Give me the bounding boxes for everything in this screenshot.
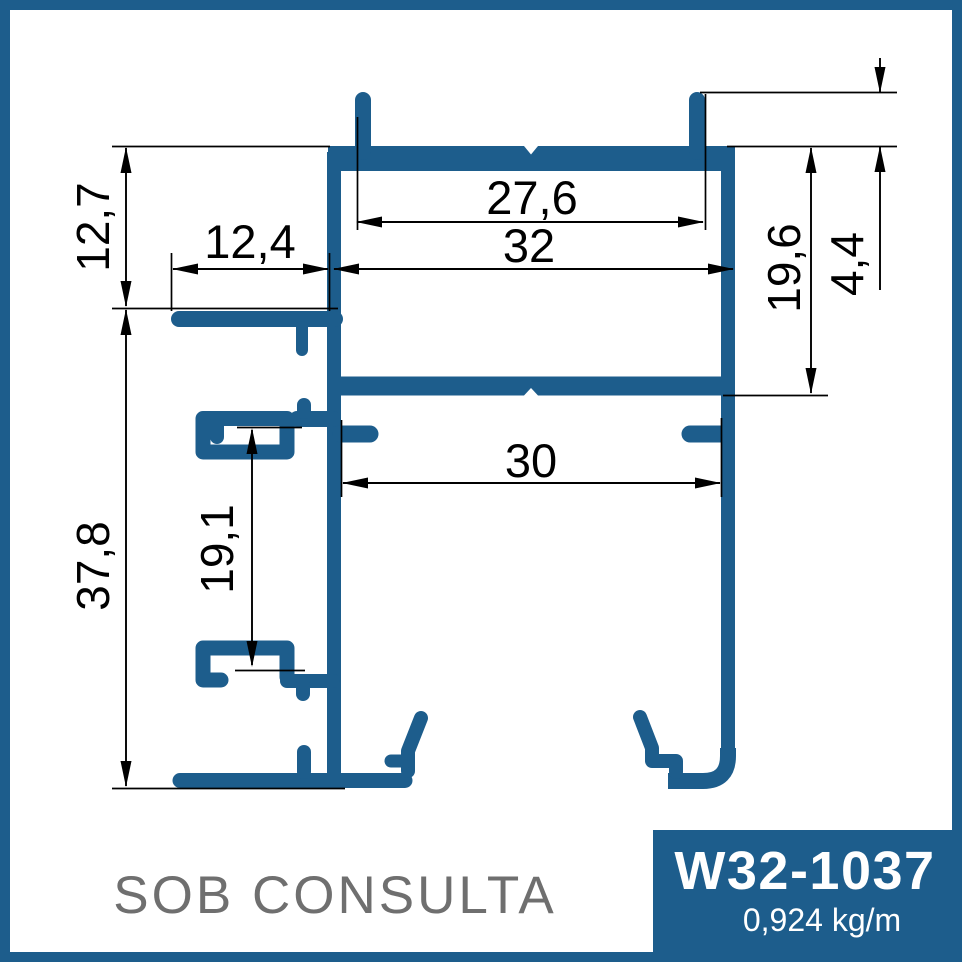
dim-label-tab-height: 4,4 xyxy=(821,232,873,296)
profile-technical-drawing: 27,6 32 12,4 30 12,7 37,8 19,6 4,4 19,1 … xyxy=(0,0,962,962)
dim-clip-spacing xyxy=(247,428,258,667)
dim-label-top-offset: 12,7 xyxy=(67,182,119,272)
badge-profile-weight: 0,924 kg/m xyxy=(743,902,901,938)
profile-lower-clip xyxy=(203,648,287,680)
profile-foot-right xyxy=(640,717,676,772)
dim-label-inner-width: 30 xyxy=(505,434,557,487)
availability-note: SOB CONSULTA xyxy=(113,866,556,925)
profile-code-badge: W32-1037 0,924 kg/m xyxy=(653,830,952,952)
dim-label-clip-spacing: 19,1 xyxy=(191,504,243,594)
dim-label-left-arm-length: 12,4 xyxy=(204,215,295,268)
catalog-page: 27,6 32 12,4 30 12,7 37,8 19,6 4,4 19,1 … xyxy=(0,0,962,962)
dim-top-offset xyxy=(121,147,132,307)
badge-profile-code: W32-1037 xyxy=(674,841,935,901)
dim-label-body-height: 37,8 xyxy=(67,521,119,611)
dim-label-tab-span-top: 27,6 xyxy=(486,171,577,224)
dim-body-height xyxy=(121,309,132,787)
dim-label-upper-chamber-depth: 19,6 xyxy=(758,223,810,313)
profile-cross-section xyxy=(179,100,735,781)
dim-label-outer-width: 32 xyxy=(503,219,555,272)
